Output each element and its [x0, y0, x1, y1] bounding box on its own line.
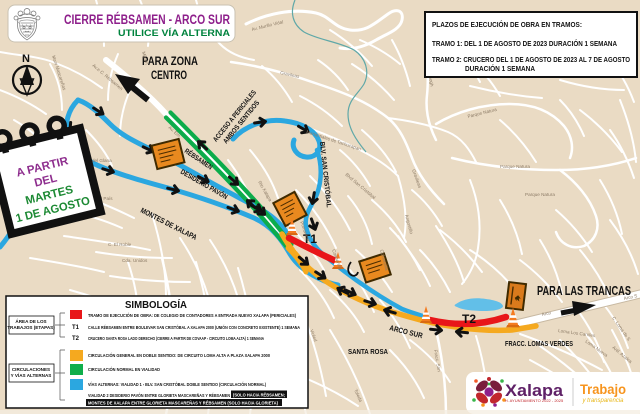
svg-text:FRACC. LOMAS VERDES: FRACC. LOMAS VERDES	[505, 341, 573, 348]
svg-text:del Glana: del Glana	[92, 158, 112, 163]
svg-text:MONTES DE XALAPA ENTRE GLORIET: MONTES DE XALAPA ENTRE GLORIETA MASCAREÑ…	[88, 399, 278, 406]
svg-text:Trabajo: Trabajo	[580, 381, 626, 397]
svg-text:Cda. Unidos: Cda. Unidos	[122, 258, 148, 263]
svg-text:DURACIÓN 1 SEMANA: DURACIÓN 1 SEMANA	[465, 64, 535, 73]
svg-text:VÍAS ALTERNAS: VIALIDAD 1 - BL: VÍAS ALTERNAS: VIALIDAD 1 - BLV. SAN CRI…	[88, 380, 266, 387]
svg-text:VIALIDAD 2 DESIDERIO PAVÓN EN: VIALIDAD 2 DESIDERIO PAVÓN ENTRE GLORIET…	[88, 391, 231, 398]
svg-text:TRABAJOS (ETAPAS): TRABAJOS (ETAPAS)	[7, 325, 55, 330]
svg-text:Y VÍAS ALTERNAS: Y VÍAS ALTERNAS	[11, 371, 52, 378]
svg-text:PARA LAS TRANCAS: PARA LAS TRANCAS	[537, 284, 631, 298]
svg-text:SIMBOLOGÍA: SIMBOLOGÍA	[125, 298, 187, 311]
svg-text:TRAMO DE EJECUCIÓN DE OBRA: DE: TRAMO DE EJECUCIÓN DE OBRA: DE COLEGIO D…	[88, 311, 296, 318]
svg-text:T1: T1	[72, 325, 80, 331]
svg-text:CIERRE RÉBSAMEN - ARCO SUR: CIERRE RÉBSAMEN - ARCO SUR	[64, 12, 230, 27]
svg-text:y transparencia: y transparencia	[581, 398, 624, 404]
svg-text:TRAMO 1: DEL 1 DE AGOSTO DE 20: TRAMO 1: DEL 1 DE AGOSTO DE 2023 DURACIÓ…	[432, 39, 617, 48]
svg-text:CENTRO: CENTRO	[151, 70, 187, 82]
svg-text:PLAZOS DE EJECUCIÓN DE OBRA EN: PLAZOS DE EJECUCIÓN DE OBRA EN TRAMOS:	[432, 20, 582, 29]
svg-text:CRUCERO SANTA ROSA LADO DERECH: CRUCERO SANTA ROSA LADO DERECHO (CIERRE …	[88, 336, 264, 341]
svg-text:CIRCULACIONES: CIRCULACIONES	[12, 367, 50, 372]
svg-text:CIRCULACIÓN NORMAL EN VIALIDAD: CIRCULACIÓN NORMAL EN VIALIDAD	[88, 365, 161, 372]
svg-text:C. El Roble: C. El Roble	[108, 242, 132, 247]
svg-text:H. AYUNTAMIENTO 2022 - 2025: H. AYUNTAMIENTO 2022 - 2025	[505, 398, 564, 403]
svg-text:UTILICE VÍA ALTERNA: UTILICE VÍA ALTERNA	[118, 28, 230, 39]
svg-text:Parque Natura: Parque Natura	[500, 164, 530, 169]
svg-text:T2: T2	[72, 336, 80, 342]
svg-text:CALLE RÉBSAMEN ENTRE BOULEVAR: CALLE RÉBSAMEN ENTRE BOULEVAR SAN CRISTÓ…	[88, 323, 301, 330]
svg-text:TRAMO 2: CRUCERO DEL 1 DE AGOS: TRAMO 2: CRUCERO DEL 1 DE AGOSTO DE 2023…	[432, 57, 630, 64]
svg-text:ÁREA DE LOS: ÁREA DE LOS	[15, 318, 46, 324]
svg-text:N: N	[22, 53, 30, 65]
svg-text:SANTA ROSA: SANTA ROSA	[348, 347, 388, 356]
svg-text:T2: T2	[462, 312, 476, 326]
svg-text:PARA ZONA: PARA ZONA	[142, 56, 198, 68]
svg-text:CIRCULACIÓN GENERAL EN DOBLE S: CIRCULACIÓN GENERAL EN DOBLE SENTIDO: DE…	[88, 351, 270, 358]
svg-text:(SOLO HACIA RÉBSAMEN;: (SOLO HACIA RÉBSAMEN;	[233, 391, 285, 398]
svg-text:Parque Natura: Parque Natura	[525, 192, 555, 197]
